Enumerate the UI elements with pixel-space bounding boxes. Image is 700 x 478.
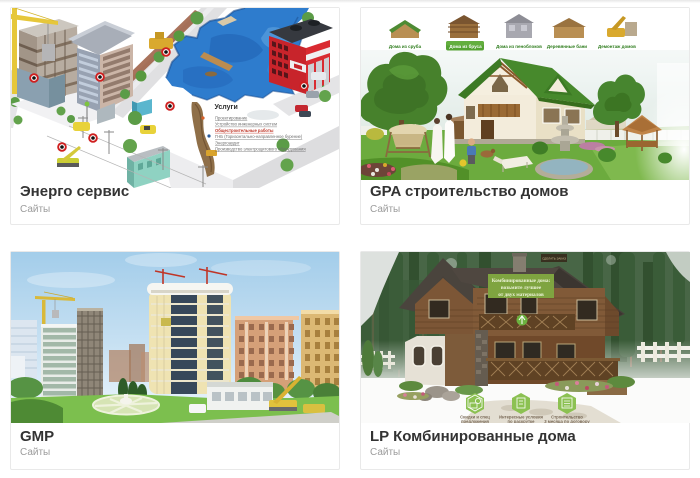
svg-text:СДЕЛАТЬ ЗАКАЗ: СДЕЛАТЬ ЗАКАЗ xyxy=(542,257,566,261)
svg-text:Общестроительные работы: Общестроительные работы xyxy=(215,128,274,133)
svg-text:Проектирование: Проектирование xyxy=(215,116,248,121)
svg-text:Дома из пеноблоков: Дома из пеноблоков xyxy=(496,43,542,49)
svg-text:предложения: предложения xyxy=(461,419,490,423)
svg-text:от двух материалов: от двух материалов xyxy=(498,292,544,298)
svg-text:Устройство инженерных систем: Устройство инженерных систем xyxy=(215,122,277,127)
svg-text:Комбинированные дома:: Комбинированные дома: xyxy=(492,277,551,284)
svg-text:Услуги: Услуги xyxy=(215,104,238,111)
svg-text:возьмите лучшее: возьмите лучшее xyxy=(501,285,542,291)
svg-text:Демонтаж домов: Демонтаж домов xyxy=(598,44,636,49)
svg-text:Производство электрощитового о: Производство электрощитового оборудовани… xyxy=(215,147,306,152)
svg-text:Деревянные бани: Деревянные бани xyxy=(547,43,587,49)
svg-text:по раскрутке: по раскрутке xyxy=(508,419,536,423)
svg-text:Энергоаудит: Энергоаудит xyxy=(215,140,240,145)
svg-text:Дома из сруба: Дома из сруба xyxy=(389,43,422,49)
svg-text:Дома из бруса: Дома из бруса xyxy=(449,43,482,49)
svg-text:ГНБ (Горизонтально-направленно: ГНБ (Горизонтально-направленное бурение) xyxy=(215,134,303,139)
svg-text:3 месяца по договору: 3 месяца по договору xyxy=(544,419,590,423)
